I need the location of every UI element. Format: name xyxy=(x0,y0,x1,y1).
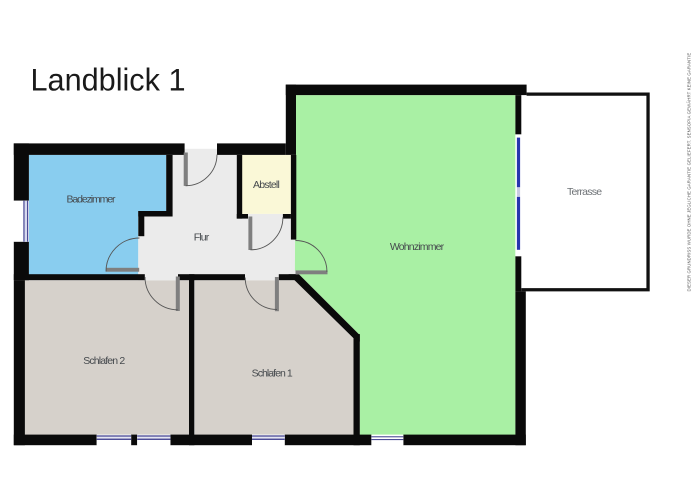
svg-text:Landblick 1: Landblick 1 xyxy=(31,61,186,97)
svg-text:DIESER GRUNDRISS WURDE OHNE JE: DIESER GRUNDRISS WURDE OHNE JEGLICHE GAR… xyxy=(687,53,692,292)
svg-text:Terrasse: Terrasse xyxy=(567,186,602,198)
svg-text:Badezimmer: Badezimmer xyxy=(67,193,117,205)
svg-text:Abstell: Abstell xyxy=(253,179,280,191)
svg-text:Flur: Flur xyxy=(194,231,210,243)
svg-text:Wohnzimmer: Wohnzimmer xyxy=(390,241,445,253)
svg-text:Schlafen 1: Schlafen 1 xyxy=(252,367,293,379)
svg-text:Schlafen 2: Schlafen 2 xyxy=(83,355,125,367)
